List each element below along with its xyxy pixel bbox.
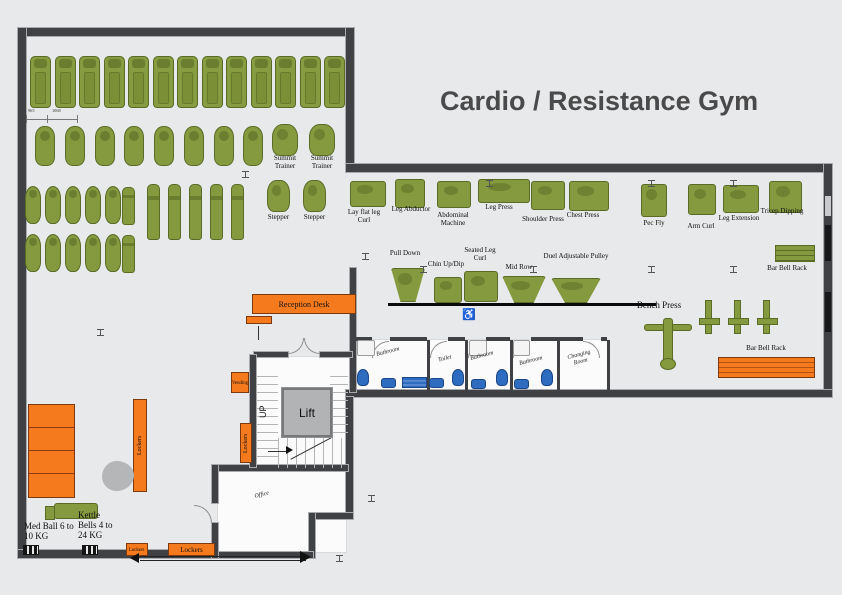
rowing-machine-icon — [231, 184, 244, 240]
wall-segment — [465, 340, 468, 390]
exercise-bike-icon — [243, 126, 263, 166]
toilet-icon — [541, 369, 553, 386]
mat-divider — [29, 427, 74, 428]
exercise-bike-icon — [214, 126, 234, 166]
tick-mark — [648, 266, 655, 273]
treadmill-icon — [275, 56, 296, 108]
wall-segment — [346, 28, 354, 168]
cardio-machine-icon — [122, 235, 135, 273]
cardio-machine-icon — [122, 187, 135, 225]
dimension-label: 965 — [28, 109, 34, 113]
door-arc — [194, 505, 212, 523]
tick-mark — [530, 266, 537, 273]
equipment-label: Chest Press — [562, 212, 604, 220]
lay-flat-leg-curl-icon — [350, 181, 386, 207]
equipment-label: Leg Press — [482, 204, 516, 212]
spin-bike-icon — [85, 234, 101, 272]
tick-mark — [336, 555, 343, 562]
reception-chair — [246, 316, 272, 324]
wall-segment — [448, 337, 465, 341]
wall-segment — [557, 337, 583, 341]
stepper-icon — [303, 180, 326, 212]
spin-bike-icon — [105, 186, 121, 224]
wall-segment — [601, 337, 607, 341]
barbell-rack-icon — [718, 357, 815, 378]
summit-trainer-icon — [272, 124, 298, 156]
equipment-label: Summit Trainer — [300, 155, 344, 171]
spin-bike-icon — [105, 234, 121, 272]
equipment-label: Arm Curl — [682, 223, 720, 231]
wall-segment — [390, 337, 427, 341]
equipment-label: Seated Leg Curl — [458, 247, 502, 263]
exercise-bike-icon — [124, 126, 144, 166]
window-mark — [825, 225, 831, 261]
pec-fly-icon — [641, 184, 667, 217]
shower-icon — [513, 340, 530, 356]
bench-end — [660, 358, 676, 370]
sink-icon — [514, 379, 529, 389]
entrance-arrow — [300, 551, 311, 563]
summit-trainer-icon — [309, 124, 335, 156]
rowing-machine-icon — [189, 184, 202, 240]
reception-leader-line — [258, 326, 259, 340]
equipment-label: Kettle Bells 4 to 24 KG — [78, 510, 120, 540]
equipment-label: Bench Press — [634, 300, 684, 310]
vending-machine: Vending — [231, 372, 249, 393]
tick-mark — [368, 495, 375, 502]
lift: Lift — [282, 388, 332, 437]
bench-press-machine-icon — [644, 318, 692, 370]
bench — [663, 318, 673, 362]
pull-down-icon — [391, 268, 425, 302]
adjustable-bench-icon — [734, 300, 741, 334]
treadmill-icon — [202, 56, 223, 108]
wall-segment — [309, 513, 353, 519]
wall-segment — [320, 352, 352, 357]
dimension-tick — [47, 115, 48, 123]
wall-segment — [531, 337, 557, 341]
tick-mark — [362, 253, 369, 260]
treadmill-icon — [300, 56, 321, 108]
wall-segment — [486, 337, 510, 341]
treadmill-icon — [30, 56, 51, 108]
wall-segment — [346, 164, 832, 172]
equipment-label: Abdominal Machine — [430, 212, 476, 228]
barbell-rack-icon — [775, 245, 815, 262]
dimension-tick — [77, 115, 78, 123]
toilet-icon — [357, 369, 369, 386]
dimension-label: 1068 — [52, 109, 61, 113]
up-label: UP — [258, 394, 268, 418]
treadmill-icon — [324, 56, 345, 108]
arm-curl-icon — [688, 184, 716, 215]
tick-mark — [420, 266, 427, 273]
toilet-icon — [452, 369, 464, 386]
equipment-label: Bar Bell Rack — [756, 265, 818, 273]
equipment-label: Leg Abductor — [390, 206, 432, 214]
spin-bike-icon — [65, 234, 81, 272]
lockers: Lockers — [168, 543, 215, 556]
treadmill-icon — [177, 56, 198, 108]
treadmill-icon — [104, 56, 125, 108]
wall-segment — [350, 268, 356, 392]
lockers: Lockers — [133, 399, 147, 492]
chest-press-icon — [569, 181, 609, 211]
wall-segment — [212, 465, 218, 503]
exercise-bike-icon — [95, 126, 115, 166]
wheelchair-icon: ♿ — [462, 308, 476, 321]
abdominal-machine-icon — [437, 181, 471, 208]
dimension-line — [26, 119, 78, 120]
double-door-arc — [288, 338, 304, 354]
tick-mark — [97, 329, 104, 336]
adjustable-bench-icon — [705, 300, 712, 334]
equipment-label: Shoulder Press — [520, 216, 566, 224]
wall-segment — [18, 28, 354, 36]
toilet-icon — [496, 369, 508, 386]
treadmill-icon — [226, 56, 247, 108]
exercise-bike-icon — [154, 126, 174, 166]
mat-stack — [28, 404, 75, 498]
adjustable-bench-icon — [763, 300, 770, 334]
leg-extension-icon — [723, 185, 759, 213]
equipment-label: Bar Bell Rack — [734, 345, 798, 353]
treadmill-icon — [153, 56, 174, 108]
window-mark — [825, 292, 831, 332]
seated-leg-curl-icon — [464, 271, 498, 302]
chin-up-dip-icon — [434, 277, 462, 303]
wall-segment — [557, 340, 560, 390]
shoulder-press-icon — [531, 181, 565, 210]
mat-divider — [29, 473, 74, 474]
page-title: Cardio / Resistance Gym — [440, 86, 758, 117]
tick-mark — [486, 180, 493, 187]
double-door-arc — [304, 338, 320, 354]
equipment-label: Leg Extension — [714, 215, 764, 223]
stair-arrow — [286, 446, 293, 454]
equipment-label: Pull Down — [386, 250, 424, 258]
wall-segment — [388, 303, 656, 306]
wall-segment — [346, 390, 832, 397]
lockers: Lockers — [240, 423, 252, 463]
spin-bike-icon — [25, 186, 41, 224]
spin-bike-icon — [45, 234, 61, 272]
spin-bike-icon — [85, 186, 101, 224]
duel-adjustable-pulley-icon — [551, 278, 601, 303]
stairs — [330, 376, 348, 440]
dimension-tick — [26, 115, 27, 123]
exercise-bike-icon — [65, 126, 85, 166]
equipment-label: Pec Fly — [636, 220, 672, 228]
equipment-label: Med Ball 6 to 10 KG — [24, 521, 82, 541]
sink-icon — [429, 378, 444, 388]
sink-icon — [471, 379, 486, 389]
treadmill-icon — [55, 56, 76, 108]
mat-divider — [29, 450, 74, 451]
treadmill-icon — [251, 56, 272, 108]
med-ball-rack-icon — [82, 545, 98, 555]
tick-mark — [730, 180, 737, 187]
window-mark — [825, 196, 831, 216]
equipment-label: Lay flat leg Curl — [344, 209, 384, 225]
equipment-label: Duel Adjustable Pulley — [542, 253, 610, 261]
tick-mark — [730, 266, 737, 273]
spin-bike-icon — [45, 186, 61, 224]
med-ball-rack-icon — [23, 545, 39, 555]
stairs — [256, 376, 278, 468]
tick-mark — [648, 180, 655, 187]
wall-segment — [607, 340, 610, 390]
wall-segment — [18, 28, 26, 558]
exercise-bike-icon — [184, 126, 204, 166]
office-floor — [218, 471, 346, 552]
lockers-label: Lockers — [129, 547, 144, 552]
bean-bag — [102, 461, 134, 491]
entrance-door-line — [140, 556, 306, 561]
reception-desk: Reception Desk — [252, 294, 356, 314]
treadmill-icon — [128, 56, 149, 108]
mid-row-icon — [502, 276, 546, 303]
spin-bike-icon — [65, 186, 81, 224]
equipment-label: Stepper — [292, 214, 337, 222]
sink-icon — [381, 378, 396, 388]
rowing-machine-icon — [168, 184, 181, 240]
wall-segment — [254, 352, 288, 357]
entrance-arrow — [130, 553, 139, 563]
bench-icon — [402, 377, 427, 388]
spin-bike-icon — [25, 234, 41, 272]
gym-floor-plan: Cardio / Resistance Gym — [0, 0, 842, 595]
exercise-bike-icon — [35, 126, 55, 166]
rowing-machine-icon — [147, 184, 160, 240]
tick-mark — [242, 171, 249, 178]
equipment-label: Tricep Dipping — [758, 208, 806, 216]
rowing-machine-icon — [210, 184, 223, 240]
vending-label: Vending — [232, 380, 248, 385]
stepper-icon — [267, 180, 290, 212]
leg-abductor-icon — [395, 179, 425, 208]
treadmill-icon — [79, 56, 100, 108]
stair-arrow-stem — [268, 451, 286, 452]
